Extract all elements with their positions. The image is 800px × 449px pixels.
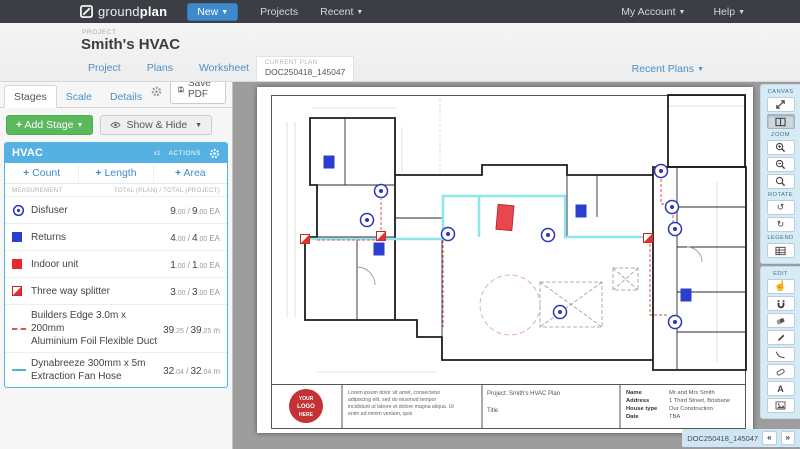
logo-stamp: YOUR LOGO HERE [289, 389, 323, 423]
current-plan-box[interactable]: CURRENT PLAN DOC250418_145047 [256, 56, 354, 81]
rotate-cw-icon: ↻ [777, 219, 785, 230]
measurement-row-returns[interactable]: Returns 4.00/4.00EA [5, 224, 227, 251]
nav-help[interactable]: Help▼ [713, 6, 745, 18]
pencil-icon [776, 333, 786, 343]
zoom-out-button[interactable] [767, 157, 795, 172]
curve-button[interactable] [767, 347, 795, 362]
current-plan-value: DOC250418_145047 [265, 67, 345, 77]
measurement-row-flexible-duct[interactable]: Builders Edge 3.0m x 200mmAluminium Foil… [5, 305, 227, 353]
legend-icon [775, 246, 786, 256]
zoom-extents-icon [775, 176, 786, 187]
split-view-icon [775, 117, 786, 127]
title-block-project: Project: Smith's HVAC Plan [487, 391, 560, 397]
stage-gear-icon[interactable] [209, 148, 220, 159]
stage-actions-row: + Add Stage▼ Show & Hide▼ [0, 108, 232, 141]
solid-line-symbol-icon [12, 369, 26, 371]
split-view-button[interactable] [767, 114, 795, 129]
zoom-in-icon [775, 142, 786, 153]
stage-actions-button[interactable]: ACTIONS [169, 150, 201, 157]
svg-text:1 Third Street, Brisbane: 1 Third Street, Brisbane [669, 398, 730, 404]
caret-down-icon: ▼ [195, 122, 202, 129]
row-totals: 32.04/32.04m [163, 361, 220, 379]
title-block-description: Lorem ipsum dolor sit amet, consectetur … [348, 390, 454, 417]
add-stage-button[interactable]: + Add Stage▼ [6, 115, 93, 135]
svg-text:Date: Date [626, 414, 639, 420]
caret-down-icon: ▼ [356, 9, 363, 16]
svg-text:adipiscing elit, sed do eiusmo: adipiscing elit, sed do eiusmod tempor [348, 397, 437, 403]
zoom-extents-button[interactable] [767, 174, 795, 189]
measurement-row-fan-hose[interactable]: Dynabreeze 300mm x 5mExtraction Fan Hose… [5, 353, 227, 387]
pan-icon [775, 99, 786, 110]
row-totals: 9.00/9.00EA [170, 201, 220, 219]
rotate-ccw-button[interactable]: ↺ [767, 200, 795, 215]
stage-card-hvac: HVAC x1 ACTIONS + Count + Length + Area … [4, 142, 228, 388]
stage-header[interactable]: HVAC x1 ACTIONS [5, 143, 227, 163]
image-icon [775, 401, 786, 410]
magnet-icon [776, 299, 786, 309]
svg-text:incididunt ut labore et dolore: incididunt ut labore et dolore magna ali… [348, 404, 454, 410]
left-panel-tabbar: Stages Scale Details Save PDF [0, 82, 232, 108]
zoom-out-icon [775, 159, 786, 170]
tree-outline [480, 275, 540, 335]
duct-red-lines[interactable] [317, 179, 673, 327]
settings-gear-icon[interactable] [151, 84, 162, 102]
add-area-button[interactable]: + Area [154, 163, 227, 183]
shape-button[interactable] [767, 364, 795, 379]
caret-down-icon: ▼ [77, 122, 84, 129]
eraser-button[interactable] [767, 313, 795, 328]
tab-details[interactable]: Details [101, 86, 151, 107]
dashed-line-symbol-icon [12, 328, 26, 330]
show-hide-button[interactable]: Show & Hide▼ [100, 115, 212, 135]
measurement-row-diffuser[interactable]: Disfuser 9.00/9.00EA [5, 197, 227, 224]
section-edit-label: EDIT [761, 271, 800, 277]
project-title: Smith's HVAC [81, 36, 180, 53]
title-block: YOUR LOGO HERE Lorem ipsum dolor sit ame… [272, 385, 746, 429]
recent-plans-dropdown[interactable]: Recent Plans▼ [632, 63, 704, 75]
add-count-button[interactable]: + Count [5, 163, 79, 183]
row-totals: 4.00/4.00EA [170, 228, 220, 246]
zoom-in-button[interactable] [767, 140, 795, 155]
add-length-button[interactable]: + Length [79, 163, 153, 183]
diffuser-symbol-icon [12, 204, 25, 217]
eraser-icon [775, 316, 786, 326]
next-plan-button[interactable]: » [781, 431, 795, 445]
svg-text:Lorem ipsum dolor sit amet, co: Lorem ipsum dolor sit amet, consectetur [348, 390, 441, 396]
text-button[interactable]: A [767, 381, 795, 396]
svg-text:Our Construction: Our Construction [669, 406, 713, 412]
plan-page[interactable]: YOUR LOGO HERE Lorem ipsum dolor sit ame… [257, 87, 753, 433]
hand-pointer-icon: ☝ [774, 281, 786, 292]
text-icon: A [777, 384, 784, 394]
project-header: PROJECT Smith's HVAC Project Plans Works… [0, 23, 800, 82]
measure-buttons-row: + Count + Length + Area [5, 163, 227, 184]
nav-recent[interactable]: Recent▼ [320, 6, 363, 18]
splitter-symbol-icon [12, 286, 22, 296]
tab-project[interactable]: Project [88, 62, 121, 74]
svg-text:Name: Name [626, 390, 643, 396]
tab-stages[interactable]: Stages [4, 85, 57, 108]
caret-down-icon: ▼ [697, 66, 704, 73]
section-rotate-label: ROTATE [761, 192, 800, 198]
tab-worksheet[interactable]: Worksheet [199, 62, 249, 74]
caret-down-icon: ▼ [679, 9, 686, 16]
stage-multiplier: x1 [154, 150, 161, 157]
tab-plans[interactable]: Plans [147, 62, 173, 74]
measurement-row-indoor-unit[interactable]: Indoor unit 1.00/1.00EA [5, 251, 227, 278]
rotate-cw-button[interactable]: ↻ [767, 217, 795, 232]
prev-plan-button[interactable]: « [762, 431, 776, 445]
section-zoom-label: ZOOM [761, 132, 800, 138]
edit-tool-panel: EDIT ☝ A [760, 266, 800, 419]
current-plan-label: CURRENT PLAN [265, 60, 345, 66]
diffuser-dots [365, 169, 677, 324]
nav-my-account[interactable]: My Account▼ [621, 6, 685, 18]
shape-icon [775, 367, 786, 377]
svg-text:TBA: TBA [669, 414, 680, 420]
svg-text:HERE: HERE [299, 412, 314, 418]
save-icon [178, 85, 184, 94]
row-totals: 39.25/39.25m [163, 320, 220, 338]
indoor-unit-symbol-icon [12, 259, 22, 269]
svg-text:enim ad minim veniam, quis: enim ad minim veniam, quis [348, 411, 413, 417]
eye-icon [110, 121, 121, 129]
groundplan-logo-icon [80, 5, 93, 18]
indoor-unit-marker[interactable] [496, 204, 514, 230]
project-eyebrow: PROJECT [82, 29, 117, 36]
svg-text:LOGO: LOGO [297, 404, 315, 410]
snap-button[interactable] [767, 296, 795, 311]
duct-cyan-lines[interactable] [305, 196, 646, 239]
col-totals: TOTAL (PLAN) / TOTAL (PROJECT) [114, 187, 220, 194]
svg-text:Address: Address [626, 398, 649, 404]
plan-inner-border [272, 96, 746, 429]
measurement-row-splitter[interactable]: Three way splitter 3.00/3.00EA [5, 278, 227, 305]
returns-symbol-icon [12, 232, 22, 242]
left-panel: Stages Scale Details Save PDF + Add Stag… [0, 82, 233, 449]
rotate-ccw-icon: ↺ [777, 202, 785, 213]
select-button[interactable]: ☝ [767, 279, 795, 294]
brand-logo[interactable]: groundplan [80, 4, 167, 19]
title-block-fields: Name Mr and Mrs Smith Address 1 Third St… [626, 390, 730, 420]
section-legend-label: LEGEND [761, 235, 800, 241]
doc-nav-filename: DOC250418_145047 [687, 434, 758, 443]
svg-text:Mr and Mrs Smith: Mr and Mrs Smith [669, 390, 715, 396]
pencil-button[interactable] [767, 330, 795, 345]
caret-down-icon: ▼ [221, 9, 228, 16]
top-navbar: groundplan New▼ Projects Recent▼ My Acco… [0, 0, 800, 23]
svg-text:House type: House type [626, 406, 658, 412]
columns-header: MEASUREMENT TOTAL (PLAN) / TOTAL (PROJEC… [5, 184, 227, 197]
curve-icon [775, 350, 786, 359]
pan-button[interactable] [767, 97, 795, 112]
view-tool-panel: CANVAS ZOOM ROTATE ↺ ↻ LEGEND [760, 84, 800, 264]
nav-projects[interactable]: Projects [260, 6, 298, 18]
tab-scale[interactable]: Scale [57, 86, 101, 107]
section-canvas-label: CANVAS [761, 89, 800, 95]
title-block-title-label: Title [487, 408, 499, 414]
brand-text: groundplan [98, 4, 167, 19]
new-button[interactable]: New▼ [187, 3, 238, 21]
diffuser-markers[interactable] [361, 165, 682, 329]
stage-name: HVAC [12, 147, 43, 159]
image-button[interactable] [767, 398, 795, 413]
caret-down-icon: ▼ [738, 9, 745, 16]
col-measurement: MEASUREMENT [12, 187, 62, 194]
row-totals: 3.00/3.00EA [170, 282, 220, 300]
row-totals: 1.00/1.00EA [170, 255, 220, 273]
svg-text:YOUR: YOUR [299, 396, 314, 402]
legend-button[interactable] [767, 243, 795, 258]
hatched-areas [540, 268, 638, 327]
doc-nav-bar: DOC250418_145047 « » [682, 429, 800, 447]
